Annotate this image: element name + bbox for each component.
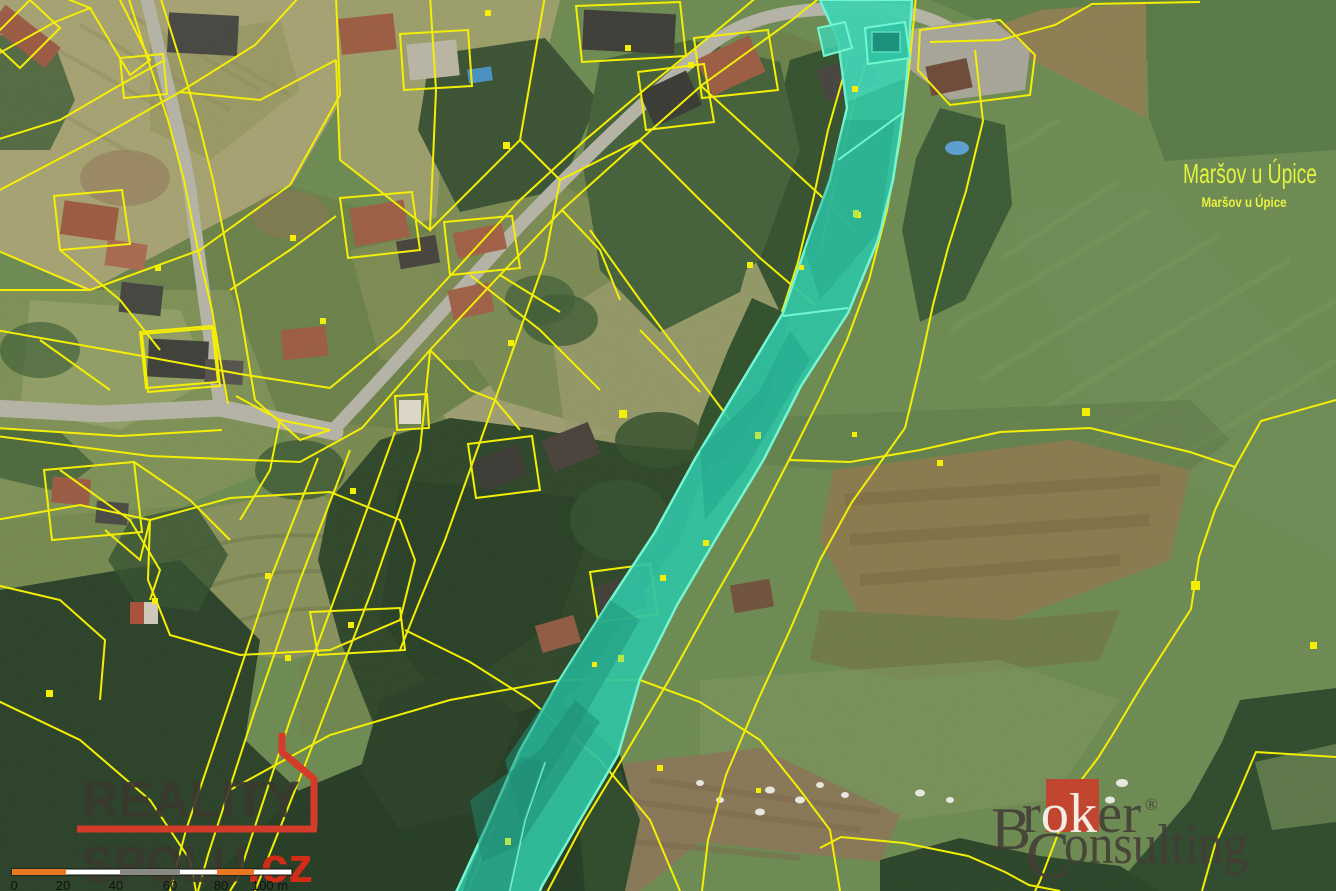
svg-text:40: 40 <box>109 878 123 891</box>
svg-text:60: 60 <box>163 878 177 891</box>
svg-text:®: ® <box>1145 795 1158 814</box>
svg-text:20: 20 <box>56 878 70 891</box>
svg-text:100 m: 100 m <box>252 878 288 891</box>
svg-text:0: 0 <box>10 878 17 891</box>
svg-text:80: 80 <box>214 878 228 891</box>
svg-text:REALITY: REALITY <box>82 771 300 828</box>
svg-text:onsulting: onsulting <box>1064 814 1248 876</box>
